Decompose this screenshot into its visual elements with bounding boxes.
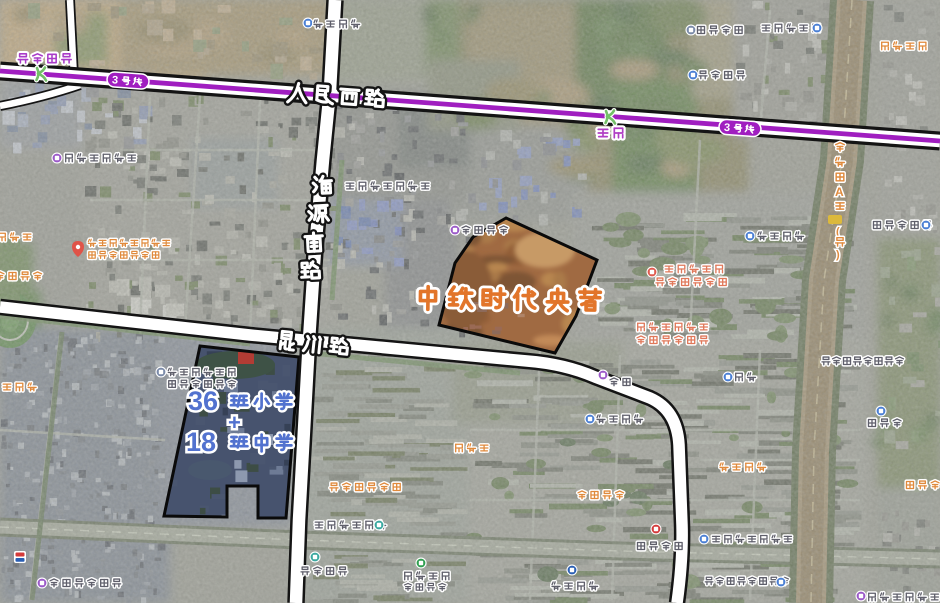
svg-text:+: + — [228, 410, 241, 435]
svg-text:3: 3 — [724, 122, 731, 134]
svg-text:3: 3 — [112, 74, 119, 86]
svg-text:36: 36 — [188, 386, 218, 416]
svg-text:): ) — [836, 249, 840, 261]
svg-text:A: A — [835, 185, 844, 199]
svg-text:18: 18 — [186, 427, 216, 457]
